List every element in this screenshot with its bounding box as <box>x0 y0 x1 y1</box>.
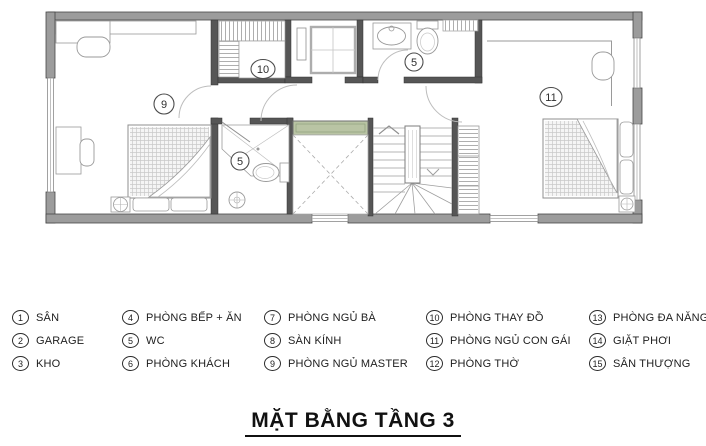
daughter-bed-icon <box>543 119 633 198</box>
legend-item: 8 SÀN KÍNH <box>264 333 408 348</box>
legend-label: SÂN <box>36 312 59 324</box>
door-arc <box>179 86 211 118</box>
door-arc <box>378 50 408 80</box>
shelf-icon <box>220 42 239 77</box>
legend-label: PHÒNG BẾP + ĂN <box>146 312 242 324</box>
side-desk <box>56 127 81 174</box>
wardrobe-icon <box>459 127 478 213</box>
legend-item: 4 PHÒNG BẾP + ĂN <box>122 310 242 325</box>
legend-label: PHÒNG THAY ĐỒ <box>450 312 544 324</box>
legend-number-badge: 4 <box>122 310 139 325</box>
legend-item: 12 PHÒNG THỜ <box>426 356 571 371</box>
legend-label: PHÒNG KHÁCH <box>146 358 230 370</box>
legend-label: GARAGE <box>36 335 84 347</box>
room-label-wc-upper: 5 <box>411 57 417 69</box>
legend-label: SÂN THƯỢNG <box>613 358 690 370</box>
legend-item: 10 PHÒNG THAY ĐỒ <box>426 310 571 325</box>
nightstand-icon <box>619 196 635 212</box>
chair-icon <box>592 52 614 80</box>
room-label-daughter: 11 <box>545 92 556 104</box>
toilet-icon <box>417 21 438 54</box>
legend-label: GIẶT PHƠI <box>613 335 671 347</box>
glass-floor-void <box>293 121 368 214</box>
wc-upper-fixtures <box>373 20 478 54</box>
legend-label: PHÒNG NGỦ CON GÁI <box>450 335 571 347</box>
stairs <box>373 126 452 214</box>
legend-number-badge: 1 <box>12 310 29 325</box>
master-bed-icon <box>128 125 211 211</box>
legend-item: 14 GIẶT PHƠI <box>589 333 706 348</box>
legend-item: 5 WC <box>122 333 242 348</box>
pillow-icon <box>133 198 169 211</box>
legend-label: PHÒNG THỜ <box>450 358 519 370</box>
legend-label: WC <box>146 335 165 347</box>
legend-number-badge: 11 <box>426 333 443 348</box>
floor-plan-drawing: 9 10 5 5 11 <box>0 0 706 240</box>
up-arrow-icon <box>379 126 399 134</box>
room-label-master: 9 <box>161 99 167 111</box>
legend-number-badge: 7 <box>264 310 281 325</box>
elevator <box>297 27 355 73</box>
legend-column: 4 PHÒNG BẾP + ĂN 5 WC 6 PHÒNG KHÁCH <box>122 310 242 379</box>
legend-label: KHO <box>36 358 60 370</box>
legend-number-badge: 3 <box>12 356 29 371</box>
legend-label: PHÒNG NGỦ BÀ <box>288 312 376 324</box>
legend-number-badge: 2 <box>12 333 29 348</box>
wardrobe-icon <box>220 22 285 41</box>
legend-item: 9 PHÒNG NGỦ MASTER <box>264 356 408 371</box>
legend-column: 10 PHÒNG THAY ĐỒ 11 PHÒNG NGỦ CON GÁI 12… <box>426 310 571 379</box>
legend-label: PHÒNG NGỦ MASTER <box>288 358 408 370</box>
legend-item: 6 PHÒNG KHÁCH <box>122 356 242 371</box>
pillow-icon <box>620 160 633 194</box>
shelf-icon <box>444 21 478 31</box>
legend-item: 11 PHÒNG NGỦ CON GÁI <box>426 333 571 348</box>
legend-column: 13 PHÒNG ĐA NĂNG 14 GIẶT PHƠI 15 SÂN THƯ… <box>589 310 706 379</box>
legend-number-badge: 14 <box>589 333 606 348</box>
legend-number-badge: 9 <box>264 356 281 371</box>
master-bedroom-furniture <box>56 21 211 212</box>
legend-number-badge: 15 <box>589 356 606 371</box>
legend-number-badge: 5 <box>122 333 139 348</box>
legend-item: 13 PHÒNG ĐA NĂNG <box>589 310 706 325</box>
floor-drain-icon <box>229 192 245 208</box>
legend-item: 7 PHÒNG NGỦ BÀ <box>264 310 408 325</box>
title-wrap: MẶT BẰNG TẦNG 3 <box>0 409 706 437</box>
room-label-dressing: 10 <box>257 64 269 76</box>
nightstand-icon <box>111 197 130 212</box>
legend-number-badge: 12 <box>426 356 443 371</box>
chair-icon <box>80 139 94 166</box>
floor-plan-page: 9 10 5 5 11 1 SÂN 2 GARAGE 3 KHO <box>0 0 706 446</box>
page-title: MẶT BẰNG TẦNG 3 <box>245 409 461 437</box>
legend-item: 15 SÂN THƯỢNG <box>589 356 706 371</box>
chair-icon <box>77 37 110 57</box>
legend-number-badge: 6 <box>122 356 139 371</box>
pillow-icon <box>171 198 207 211</box>
sink-icon <box>378 27 406 45</box>
legend-column: 1 SÂN 2 GARAGE 3 KHO <box>12 310 84 379</box>
hall-wardrobe <box>458 126 479 214</box>
legend-number-badge: 8 <box>264 333 281 348</box>
room-label-wc-lower: 5 <box>237 156 243 168</box>
planter-icon <box>293 121 368 135</box>
legend-item: 2 GARAGE <box>12 333 84 348</box>
legend-item: 3 KHO <box>12 356 84 371</box>
legend-label: PHÒNG ĐA NĂNG <box>613 312 706 324</box>
legend-number-badge: 10 <box>426 310 443 325</box>
legend: 1 SÂN 2 GARAGE 3 KHO 4 PHÒNG BẾP + ĂN 5 … <box>0 310 706 390</box>
door-arc <box>426 86 462 122</box>
legend-label: SÀN KÍNH <box>288 335 342 347</box>
pillow-icon <box>620 122 633 157</box>
door-arc <box>261 85 297 121</box>
daughter-bedroom-furniture <box>487 41 635 212</box>
legend-column: 7 PHÒNG NGỦ BÀ 8 SÀN KÍNH 9 PHÒNG NGỦ MA… <box>264 310 408 379</box>
legend-number-badge: 13 <box>589 310 606 325</box>
legend-item: 1 SÂN <box>12 310 84 325</box>
toilet-icon <box>253 163 289 182</box>
